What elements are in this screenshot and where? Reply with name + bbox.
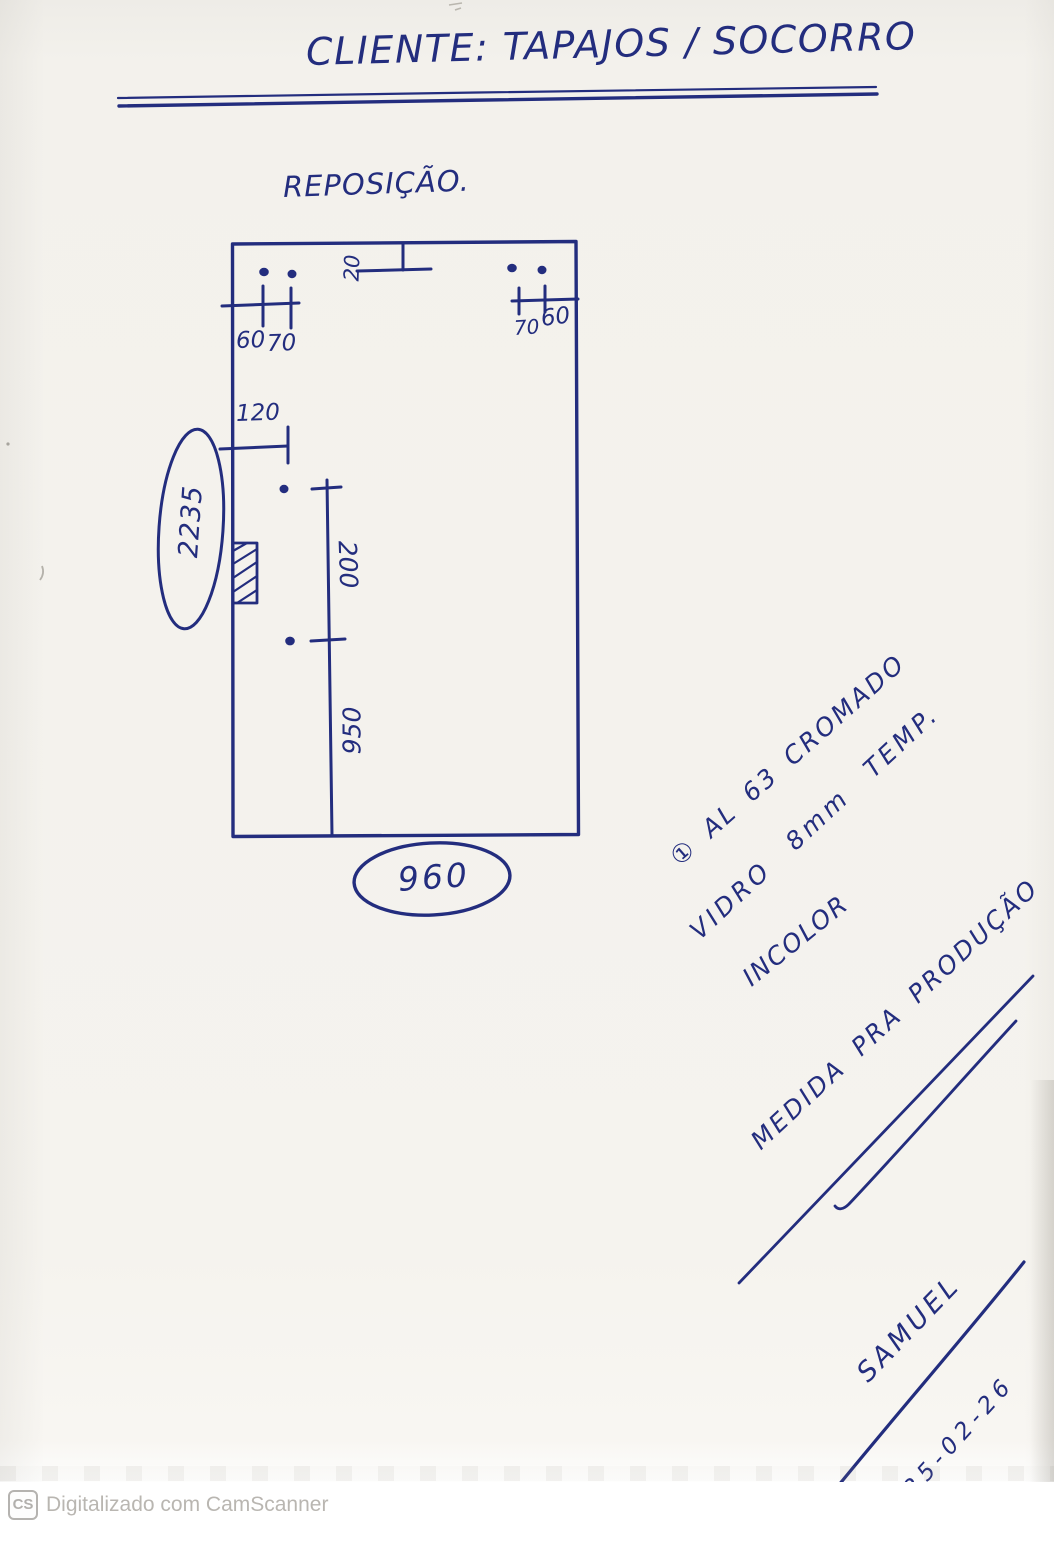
- dim-line-vertical: [327, 480, 332, 835]
- paper-edge-shadow: [1030, 1080, 1054, 1500]
- dim-tick: [312, 487, 341, 489]
- watermark-bar: CS Digitalizado com CamScanner: [0, 1482, 1054, 1542]
- stray-mark: [449, 3, 462, 10]
- dim-line: [357, 269, 431, 271]
- dim-top-right-60: 60: [539, 303, 571, 332]
- dim-top-left-70: 70: [267, 330, 297, 357]
- camscanner-badge-icon: CS: [8, 1490, 38, 1520]
- hole-dot: [259, 268, 269, 276]
- dim-span-950: 950: [338, 703, 367, 759]
- dim-spacing-200: 200: [333, 536, 364, 593]
- stray-dot: [6, 442, 9, 445]
- hole-dot: [280, 485, 289, 493]
- dim-top-center-20: 20: [339, 247, 364, 290]
- hole-dot: [507, 264, 517, 273]
- hole-dot: [288, 270, 297, 278]
- sketch-linework-svg: [0, 0, 1054, 1542]
- scan-edge-band: [0, 1466, 1054, 1481]
- watermark-text: Digitalizado com CamScanner: [46, 1493, 328, 1517]
- stray-tick: [40, 566, 43, 580]
- drawing-label: REPOSIÇÃO.: [282, 163, 470, 203]
- dim-tick: [311, 639, 345, 641]
- scanned-sheet: CLIENTE: TAPAJOS / SOCORRO REPOSIÇÃO. 60…: [0, 0, 1054, 1542]
- hole-dot: [538, 266, 547, 274]
- dim-top-left-60: 60: [236, 327, 266, 354]
- dim-left-120: 120: [236, 399, 281, 427]
- dim-top-right-70: 70: [513, 314, 540, 340]
- hatch-lock-block: [233, 543, 257, 603]
- dim-line: [220, 446, 288, 449]
- hole-dot: [285, 637, 295, 646]
- dim-width-960: 960: [397, 855, 472, 899]
